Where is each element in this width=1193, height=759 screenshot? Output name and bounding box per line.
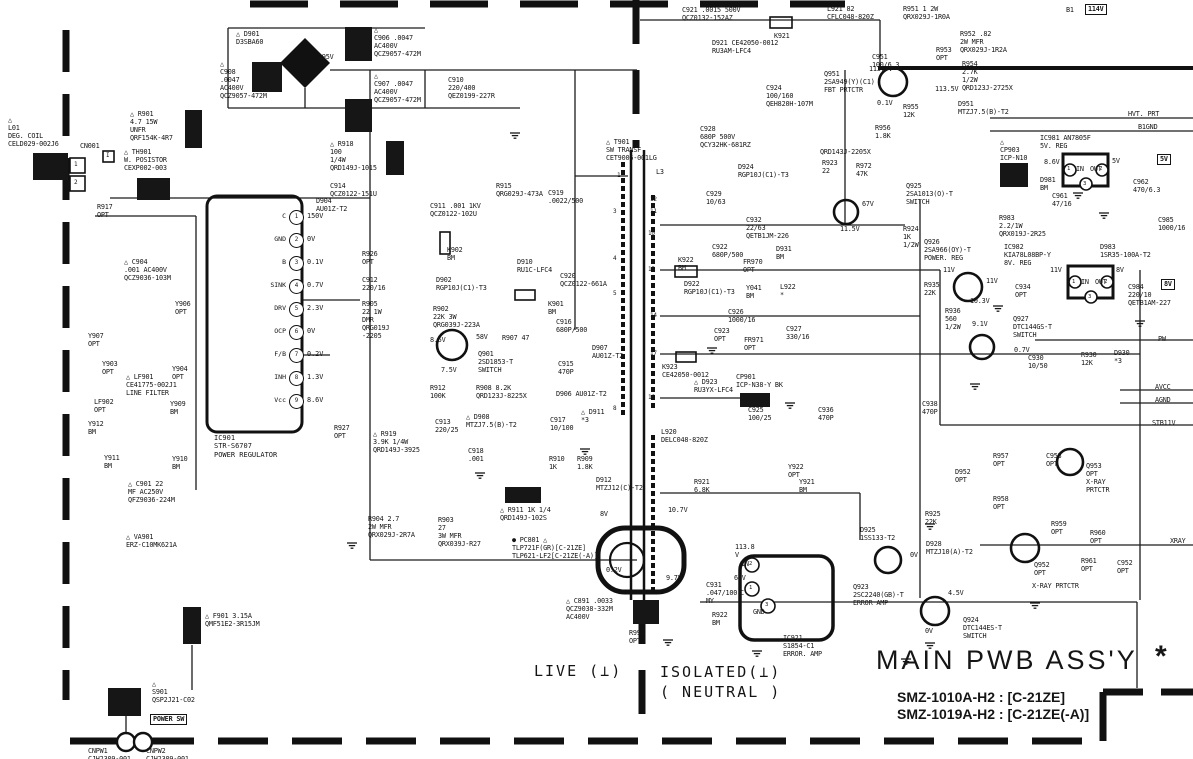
- component-label: R952 .82 2W MFR QRX029J-1R2A: [960, 30, 1007, 54]
- ic-boxes: [207, 154, 1113, 640]
- component-label: R956 1.8K: [875, 124, 891, 140]
- component-label: D924 RGP10J(C1)-T3: [738, 163, 789, 179]
- component-label: 8: [613, 405, 616, 412]
- component-label: 1: [1072, 279, 1075, 285]
- component-label: 0.2V: [606, 566, 622, 574]
- component-label: 113.8 V: [735, 543, 754, 559]
- component-label: R905 22 1W DMR QRG019J -2205: [362, 300, 389, 340]
- ic901-pin-name: C: [246, 213, 286, 220]
- component-label: D951 MTZJ7.5(B)-T2: [958, 100, 1009, 116]
- component-label: D928 MTZJ10(A)-T2: [926, 540, 973, 556]
- component-label: C910 220/400 QEZ0199-227R: [448, 76, 495, 100]
- component-label: C: [740, 589, 744, 597]
- component-label: K923 CE42050-0012: [662, 363, 709, 379]
- component-label: Y912 BM: [88, 420, 104, 436]
- component-label: R922 BM: [712, 611, 728, 627]
- ic901-pin-voltage: 0V: [307, 236, 315, 243]
- component-label: 8V: [600, 510, 608, 518]
- component-label: 3: [613, 208, 616, 215]
- component-label: R910 1K: [549, 455, 565, 471]
- component-label: R958 OPT: [993, 495, 1009, 511]
- component-label: CNPW1 CJH2309-001: [88, 747, 131, 759]
- component-label: 113.5V: [935, 85, 958, 93]
- component-label: CNPW2 CJH2309-001: [146, 747, 189, 759]
- component-label: C922 680P/500: [712, 243, 743, 259]
- component-label: D981 BM: [1040, 176, 1056, 192]
- component-label: Y921 BM: [799, 478, 815, 494]
- bridge-rectifier: [280, 38, 330, 88]
- component-label: R924 1K 1/2W: [903, 225, 919, 249]
- component-label: Y909 BM: [170, 400, 186, 416]
- component-label: △ R919 3.9K 1/4W QRD149J-3925: [373, 430, 420, 454]
- component-label: AVCC: [1155, 383, 1171, 391]
- component-label: D921 CE42050-0012 RU3AM-LFC4: [712, 39, 778, 55]
- component-label: IC981 AN7805F 5V. REG: [1040, 134, 1091, 150]
- component-label: L922 *: [780, 283, 796, 299]
- assembly-title: MAIN PWB ASS'Y: [876, 645, 1138, 676]
- component-label: K902 BM: [447, 246, 463, 262]
- component-label: IN: [741, 560, 749, 568]
- component-label: C916 680P/500: [556, 318, 587, 334]
- component-label: 3: [1088, 294, 1091, 300]
- component-label: R954 2.7K 1/2W QRD123J-2725X: [962, 60, 1013, 92]
- component-label: R927 OPT: [334, 424, 350, 440]
- component-label: D910 RU1C-LFC4: [517, 258, 552, 274]
- component-label: Y907 OPT: [88, 332, 104, 348]
- component-label: D912 MTZJ12(C)-T2: [596, 476, 643, 492]
- component-label: C924 100/160 QEH820H-107M: [766, 84, 813, 108]
- ic901-pin-circle: 1: [289, 210, 304, 225]
- component-label: 2: [1099, 166, 1102, 172]
- component-label: 1: [1067, 166, 1070, 172]
- component-label: GND: [753, 608, 765, 616]
- component-label: CN001: [80, 142, 99, 150]
- component-label: R972 47K: [856, 162, 872, 178]
- component-label: D931 BM: [776, 245, 792, 261]
- ic901-pin-circle: 8: [289, 371, 304, 386]
- transformer-t901: [623, 150, 653, 600]
- component-label: R930 12K: [1081, 351, 1097, 367]
- component-label: R902 22K 3W QRG039J-223A: [433, 305, 480, 329]
- component-label: R957 OPT: [993, 452, 1009, 468]
- ic901-pin-name: DRV: [246, 305, 286, 312]
- ic901-pin-circle: 7: [289, 348, 304, 363]
- component-label: C926 1000/16: [728, 308, 755, 324]
- component-label: 11V: [986, 277, 998, 285]
- ic901-pin-name: OCP: [246, 328, 286, 335]
- component-label: 12: [650, 196, 657, 203]
- component-label: Y910 BM: [172, 455, 188, 471]
- component-label: 17: [650, 350, 657, 357]
- component-label: IN: [1081, 278, 1089, 286]
- ic901-pin-name: SINK: [246, 282, 286, 289]
- component-label: C952 OPT: [1117, 559, 1133, 575]
- component-label: R925 22K: [925, 510, 941, 526]
- component-label: C925 100/25: [748, 406, 771, 422]
- component-label: HVT. PRT: [1128, 110, 1159, 118]
- live-label: LIVE (⊥): [534, 662, 622, 680]
- component-label: △ S901 QSP2J21-C02: [152, 680, 195, 704]
- ic901-pin-name: Vcc: [246, 397, 286, 404]
- component-label: R921 6.8K: [694, 478, 710, 494]
- component-label: R955 12K: [903, 103, 919, 119]
- component-label: D983 1SR35-100A-T2: [1100, 243, 1151, 259]
- component-label: Y906 OPT: [175, 300, 191, 316]
- component-label: 10.3V: [970, 297, 989, 305]
- component-label: △ D901 D3SBA60: [236, 30, 263, 46]
- component-label: 295V: [318, 53, 334, 61]
- ic901-pin-voltage: 0.1V: [307, 259, 323, 266]
- component-label: 0V: [910, 551, 918, 559]
- component-label: 1: [617, 172, 620, 179]
- ic901-pin-voltage: 1.3V: [307, 374, 323, 381]
- component-label: Q923 2SC2240(GB)-T ERROR AMP: [853, 583, 904, 607]
- component-label: IC982 KIA78L08BP-Y 8V. REG: [1004, 243, 1051, 267]
- component-label: I: [106, 152, 109, 159]
- component-label: Y922 OPT: [788, 463, 804, 479]
- component-label: 4: [613, 255, 616, 262]
- component-label: STB11V: [1152, 419, 1175, 427]
- component-label: L3: [656, 168, 664, 176]
- ic901-pin-circle: 3: [289, 256, 304, 271]
- component-label: R912 100K: [430, 384, 446, 400]
- component-label: R961 OPT: [1081, 557, 1097, 573]
- component-label: 2: [749, 561, 752, 567]
- component-label: 0.1V: [877, 99, 893, 107]
- ic901-pin-circle: 5: [289, 302, 304, 317]
- component-label: 2: [1104, 279, 1107, 285]
- schematic-canvas: △ D901 D3SBA60△ C906 .0047 AC400V QCZ905…: [0, 0, 1193, 759]
- component-label: △ C901 22 MF AC250V QFZ9036-224M: [128, 480, 175, 504]
- title-star-mark: *: [1155, 640, 1167, 674]
- component-label: △ D908 MTZJ7.5(B)-T2: [466, 413, 517, 429]
- ic901-pin-name: B: [246, 259, 286, 266]
- component-label: R908 8.2K QRD123J-8225X: [476, 384, 527, 400]
- component-label: R904 2.7 2W MFR QRX029J-2R7A: [368, 515, 415, 539]
- component-label: △ D911 *3: [581, 408, 604, 424]
- component-label: Q924 DTC144ES-T SWITCH: [963, 616, 1002, 640]
- component-label: D902 RGP10J(C1)-T3: [436, 276, 487, 292]
- component-label: 11V: [943, 266, 955, 274]
- component-label: R991 OPT: [629, 629, 645, 645]
- component-label: R917 OPT: [97, 203, 113, 219]
- component-label: IC921 S1854-C1 ERROR. AMP: [783, 634, 822, 658]
- component-label: D952 OPT: [955, 468, 971, 484]
- component-label: △ D923 RU3YX-LFC4: [694, 378, 733, 394]
- component-label: C934 OPT: [1015, 283, 1031, 299]
- component-label: Q901 2SD1853-T SWITCH: [478, 350, 513, 374]
- component-label: C932 22/63 QETB1JM-226: [746, 216, 789, 240]
- component-label: 3: [1083, 181, 1086, 187]
- component-label: 14: [650, 312, 657, 319]
- component-label: Y041 BM: [746, 284, 762, 300]
- component-label: R983 2.2/1W QRX019J-2R25: [999, 214, 1046, 238]
- component-label: △ L01 DEG. COIL CELD029-002J6: [8, 116, 59, 148]
- ic901-pin-voltage: 0.2V: [307, 351, 323, 358]
- component-label: QRD143J-2205X: [820, 148, 871, 156]
- component-label: C938 470P: [922, 400, 938, 416]
- ic901-pin-name: F/B: [246, 351, 286, 358]
- ic901-pin-circle: 6: [289, 325, 304, 340]
- component-label: Q951 2SA949(Y)(C1) FBT PRTCTR: [824, 70, 875, 94]
- component-label: 11V: [1050, 266, 1062, 274]
- component-label: C918 .001: [468, 447, 484, 463]
- component-label: C913 220/25: [435, 418, 458, 434]
- component-label: C912 220/16: [362, 276, 385, 292]
- component-label: D904 AU01Z-T2: [316, 197, 347, 213]
- component-label: 8.5V: [430, 336, 446, 344]
- model-line-1: SMZ-1010A-H2 : [C-21ZE]: [897, 689, 1089, 706]
- ic901-label: IC901 STR-S6707 POWER REGULATOR: [214, 434, 277, 459]
- component-label: R926 OPT: [362, 250, 378, 266]
- value-badge: 8V: [1161, 279, 1175, 290]
- component-label: 5: [613, 290, 616, 297]
- model-line-2: SMZ-1019A-H2 : [C-21ZE(-A)]: [897, 706, 1089, 723]
- component-label: Q925 2SA1013(O)-T SWITCH: [906, 182, 953, 206]
- component-label: L920 DELC048-820Z: [661, 428, 708, 444]
- component-label: 4.5V: [948, 589, 964, 597]
- component-label: C928 680P 500V QCY32HK-681RZ: [700, 125, 751, 149]
- component-label: C931 .047/100 MY: [706, 581, 737, 605]
- component-label: △ CP903 ICP-N10: [1000, 138, 1027, 162]
- component-label: 9.7V: [666, 574, 682, 582]
- component-label: C914 QCZ0122-151U: [330, 182, 377, 198]
- component-label: △ C891 .0033 QCZ9038-332M AC400V: [566, 597, 613, 621]
- component-label: △ R901 4.7 15W UNFR QRF154K-4R7: [130, 110, 173, 142]
- model-numbers: SMZ-1010A-H2 : [C-21ZE] SMZ-1019A-H2 : […: [897, 689, 1089, 723]
- component-label: C962 470/6.3: [1133, 178, 1160, 194]
- component-label: △ LF901 CE41775-002J1 LINE FILTER: [126, 373, 177, 397]
- component-label: Q952 OPT: [1034, 561, 1050, 577]
- value-badge: POWER SW: [150, 714, 187, 725]
- component-label: △ VA901 ERZ-C10MK621A: [126, 533, 177, 549]
- component-label: C953 OPT: [1046, 452, 1062, 468]
- component-label: 16: [648, 394, 655, 401]
- component-label: C927 330/16: [786, 325, 809, 341]
- component-label: D906 AU01Z-T2: [556, 390, 607, 398]
- component-label: D930 *3: [1114, 349, 1130, 365]
- component-label: R935 22K: [924, 281, 940, 297]
- component-label: D925 1SS133-T2: [860, 526, 895, 542]
- component-label: 11.5V: [840, 225, 859, 233]
- component-label: C936 470P: [818, 406, 834, 422]
- component-label: XRAY: [1170, 537, 1186, 545]
- value-badge: 5V: [1157, 154, 1171, 165]
- component-label: R903 27 3W MFR QRX039J-R27: [438, 516, 481, 548]
- ic901-pin-voltage: 150V: [307, 213, 323, 220]
- component-label: ● PC801 △ TLP721F(GR)[C-21ZE] TLP621-LF2…: [512, 536, 598, 560]
- component-label: IN: [1076, 165, 1084, 173]
- component-label: B1: [1066, 6, 1074, 14]
- component-label: D907 AU01Z-T2: [592, 344, 623, 360]
- component-label: 10.7V: [668, 506, 687, 514]
- component-label: 1: [74, 161, 77, 168]
- component-label: Y903 OPT: [102, 360, 118, 376]
- ic901-pin-name: GND: [246, 236, 286, 243]
- ic901-pin-circle: 2: [289, 233, 304, 248]
- component-label: R915 QRG029J-473A: [496, 182, 543, 198]
- component-label: R909 1.8K: [577, 455, 593, 471]
- component-label: 10: [648, 230, 655, 237]
- component-label: C915 470P: [558, 360, 574, 376]
- component-label: C920 QCZ0122-661A: [560, 272, 607, 288]
- component-label: D922 RGP10J(C1)-T3: [684, 280, 735, 296]
- component-label: 9.1V: [972, 320, 988, 328]
- component-label: FR970 OPT: [743, 258, 762, 274]
- component-label: △ C906 .0047 AC400V QCZ9057-472M: [374, 26, 421, 58]
- component-label: C930 10/50: [1028, 354, 1047, 370]
- component-label: R907 47: [502, 334, 529, 342]
- component-label: Y911 BM: [104, 454, 120, 470]
- ic901-pin-voltage: 8.6V: [307, 397, 323, 404]
- ic901-pin-voltage: 0.7V: [307, 282, 323, 289]
- component-label: R936 560 1/2W: [945, 307, 961, 331]
- component-label: R923 22: [822, 159, 838, 175]
- component-label: 67V: [862, 200, 874, 208]
- component-label: 58V: [476, 333, 488, 341]
- component-label: △ R918 100 1/4W QRD149J-1015: [330, 140, 377, 172]
- component-label: Q953 OPT X-RAY PRTCTR: [1086, 462, 1109, 494]
- ic901-pin-name: INH: [246, 374, 286, 381]
- component-label: 5V: [1112, 157, 1120, 165]
- component-label: K922 BM: [678, 256, 694, 272]
- ic901-pin-circle: 4: [289, 279, 304, 294]
- component-label: FR971 OPT: [744, 336, 763, 352]
- component-label: LF902 OPT: [94, 398, 113, 414]
- component-label: C919 .0022/500: [548, 189, 583, 205]
- component-label: 11: [650, 208, 657, 215]
- component-label: R959 OPT: [1051, 520, 1067, 536]
- component-label: △ C908 .0047 AC400V QCZ9057-472M: [220, 60, 267, 100]
- component-label: 3: [765, 602, 768, 608]
- component-label: △ C904 .001 AC400V QCZ9036-103M: [124, 258, 171, 282]
- component-label: △ F901 3.15A QMF51E2-3R15JM: [205, 612, 260, 628]
- component-label: △ R911 1K 1/4 QRD149J-102S: [500, 506, 551, 522]
- component-label: Q927 DTC144GS-T SWITCH: [1013, 315, 1052, 339]
- ic901-pin-voltage: 0V: [307, 328, 315, 335]
- component-label: Q926 2SA966(OY)-T POWER. REG: [924, 238, 971, 262]
- value-badge: 114V: [1085, 4, 1107, 15]
- ic901-pin-voltage: 2.3V: [307, 305, 323, 312]
- component-label: 1: [749, 585, 752, 591]
- component-label: L921 82 CFLC048-820Z: [827, 5, 874, 21]
- component-label: 7.5V: [441, 366, 457, 374]
- component-label: 0V: [925, 627, 933, 635]
- component-label: 2: [74, 179, 77, 186]
- component-label: △ T901 SW TRANSF CET9006-001LG: [606, 138, 657, 162]
- component-label: R960 OPT: [1090, 529, 1106, 545]
- component-label: AGND: [1155, 396, 1171, 404]
- component-label: 15: [648, 266, 655, 273]
- component-label: 8.6V: [1044, 158, 1060, 166]
- component-label: X-RAY PRTCTR: [1032, 582, 1079, 590]
- component-label: R951 1 2W QRX029J-1R0A: [903, 5, 950, 21]
- component-label: CP901 ICP-N38-Y BK: [736, 373, 783, 389]
- component-label: R953 OPT: [936, 46, 952, 62]
- component-label: C929 10/63: [706, 190, 725, 206]
- component-label: C985 1000/16: [1158, 216, 1185, 232]
- component-label: C917 10/100: [550, 416, 573, 432]
- component-label: C911 .001 1KV QCZ0122-102U: [430, 202, 481, 218]
- component-label: 8V: [1116, 266, 1124, 274]
- component-label: PW: [1158, 335, 1166, 343]
- component-label: 64V: [734, 574, 746, 582]
- component-label: △ C907 .0047 AC400V QCZ9057-472M: [374, 72, 421, 104]
- component-label: C921 .0015 500V QCZ0132-152AZ: [682, 6, 740, 22]
- component-label: C961 47/16: [1052, 192, 1071, 208]
- ic901-pin-circle: 9: [289, 394, 304, 409]
- isolated-label: ISOLATED(⊥) ( NEUTRAL ): [660, 662, 781, 703]
- component-label: △ TH901 W. POSISTOR CEXP002-003: [124, 148, 167, 172]
- component-label: B1GND: [1138, 123, 1157, 131]
- component-label: 0.7V: [1014, 346, 1030, 354]
- component-label: K901 BM: [548, 300, 564, 316]
- component-label: C923 OPT: [714, 327, 730, 343]
